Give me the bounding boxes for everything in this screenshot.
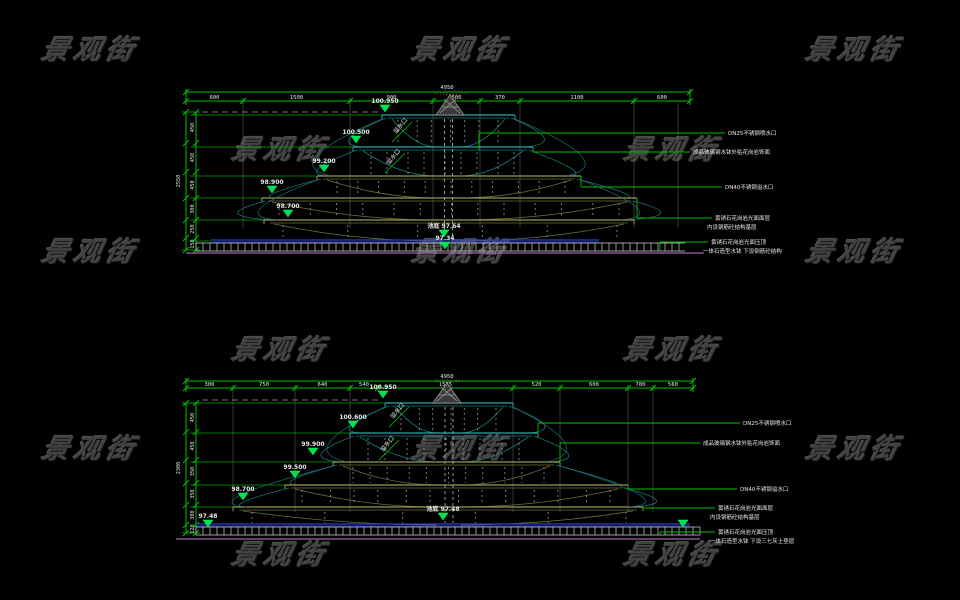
elevation-value: 99.500 — [283, 464, 306, 471]
dimension-label: 450 — [190, 123, 196, 132]
elevation-marker: 100.500 — [342, 129, 369, 143]
dimension-label: 450 — [190, 153, 196, 162]
leader-note: DN40不锈钢溢水口 — [628, 485, 788, 493]
leader-text: DN40不锈钢溢水口 — [725, 183, 773, 191]
dimension-label: 700 — [636, 382, 646, 388]
elevation-value: 98.700 — [276, 203, 299, 210]
leader-note: DN25不锈钢喷水口 — [538, 419, 791, 433]
leader-text: 黄锈石花岗岩光面压顶 — [711, 238, 767, 246]
leader-note: 黄锈石花岗岩光面压顶一体石造型水钵 下设三七灰土垫层 — [660, 528, 795, 545]
dimension-label: 300 — [190, 510, 196, 519]
elevation-value: 99.200 — [312, 158, 335, 165]
elevation-marker: 99.500 — [283, 464, 306, 478]
leader-text: 内设钢筋砼结构基层 — [710, 513, 760, 521]
dimension-label: 450 — [190, 441, 196, 450]
dimension-label: 560 — [668, 382, 678, 388]
dimension-label: 1100 — [570, 95, 583, 101]
fountain-elevation-bottom: 4950300750640540157552060070056045045035… — [176, 374, 795, 545]
elevation-value: 池底 97.48 — [426, 505, 459, 513]
dimension-label: 350 — [190, 489, 196, 498]
elevation-marker: 99.900 — [301, 441, 324, 455]
leader-text: 一体石造型水钵 下设钢筋砼结构 — [703, 247, 782, 255]
leader-note: DN40不锈钢溢水口 — [581, 176, 773, 191]
cad-canvas: 景观街景观街景观街景观街景观街景观街景观街景观街景观街景观街景观街景观街景观街景… — [0, 0, 960, 600]
elevation-value: 97.48 — [199, 513, 218, 520]
leader-text: 成品玻璃钢水钵外贴花岗岩饰面 — [693, 148, 771, 156]
dimension-label: 300 — [205, 382, 215, 388]
elevation-value: 100.950 — [369, 384, 396, 391]
dimension-label: 540 — [359, 382, 369, 388]
leader-note: 黄锈石花岗岩光面面层内设钢筋砼结构基层 — [643, 504, 774, 521]
leader-text: DN25不锈钢喷水口 — [728, 129, 776, 137]
rotated-label: 溢水口 — [378, 434, 396, 453]
dimension-label: 250 — [190, 224, 196, 233]
dimension-label: 1500 — [290, 95, 303, 101]
leader-text: 一体石造型水钵 下设三七灰土垫层 — [710, 537, 795, 545]
elevation-marker: 97.48 — [199, 513, 218, 527]
elevation-value: 98.900 — [260, 179, 283, 186]
elevation-value: 100.500 — [342, 129, 369, 136]
elevation-value: 100.600 — [339, 414, 366, 421]
elevation-marker: 100.950 — [369, 384, 396, 398]
leader-text: 成品玻璃钢水钵外贴花岗岩饰面 — [703, 439, 781, 447]
dimension-label: 640 — [318, 382, 328, 388]
dimension-label: 120 — [190, 524, 196, 533]
total-dimension: 2300 — [176, 462, 182, 475]
dimension-label: 750 — [259, 382, 269, 388]
dimension-label: 350 — [190, 467, 196, 476]
elevation-value: 98.700 — [231, 486, 254, 493]
elevation-marker: 100.600 — [339, 414, 366, 428]
dimension-label: 600 — [657, 95, 667, 101]
leader-text: DN40不锈钢溢水口 — [740, 485, 788, 493]
leader-text: DN25不锈钢喷水口 — [743, 419, 791, 427]
dimension-label: 520 — [532, 382, 542, 388]
rotated-label: 溢水口 — [388, 401, 406, 420]
leader-text: 黄锈石花岗岩光面面层 — [715, 214, 771, 222]
rotated-label: 溢水口 — [391, 116, 409, 135]
elevation-marker: 98.700 — [276, 203, 299, 217]
elevation-marker: 池底 97.48 — [426, 505, 459, 520]
leader-note: 黄锈石花岗岩光面面层内设钢筋砼结构基层 — [637, 198, 771, 231]
dimension-label: 600 — [210, 95, 220, 101]
leader-text: 内设钢筋砼结构基层 — [707, 223, 757, 231]
elevation-marker: 100.950 — [371, 98, 398, 112]
dimension-label: 600 — [589, 382, 599, 388]
elevation-value: 97.34 — [436, 235, 455, 242]
drawing-layer: 4950600150090050037011006004504504503002… — [0, 0, 960, 600]
elevation-value: 100.950 — [371, 98, 398, 105]
leader-note: 黄锈石花岗岩光面压顶一体石造型水钵 下设钢筋砼结构 — [660, 238, 782, 255]
dimension-label: 450 — [190, 413, 196, 422]
total-dimension: 4950 — [440, 85, 453, 91]
total-dimension: 2550 — [176, 175, 182, 188]
elevation-value: 99.900 — [301, 441, 324, 448]
fountain-elevation-top: 4950600150090050037011006004504504503002… — [176, 85, 782, 255]
leader-note: 成品玻璃钢水钵外贴花岗岩饰面 — [533, 147, 771, 156]
leader-text: 黄锈石花岗岩光面压顶 — [718, 528, 774, 536]
fountain-sculpture — [429, 375, 465, 403]
dimension-label: 450 — [190, 180, 196, 189]
leader-text: 黄锈石花岗岩光面面层 — [718, 504, 774, 512]
dimension-label: 300 — [190, 204, 196, 213]
leader-note: 成品玻璃钢水钵外贴花岗岩饰面 — [560, 439, 781, 462]
dimension-label: 370 — [495, 95, 505, 101]
elevation-value: 池底 97.64 — [427, 222, 460, 230]
